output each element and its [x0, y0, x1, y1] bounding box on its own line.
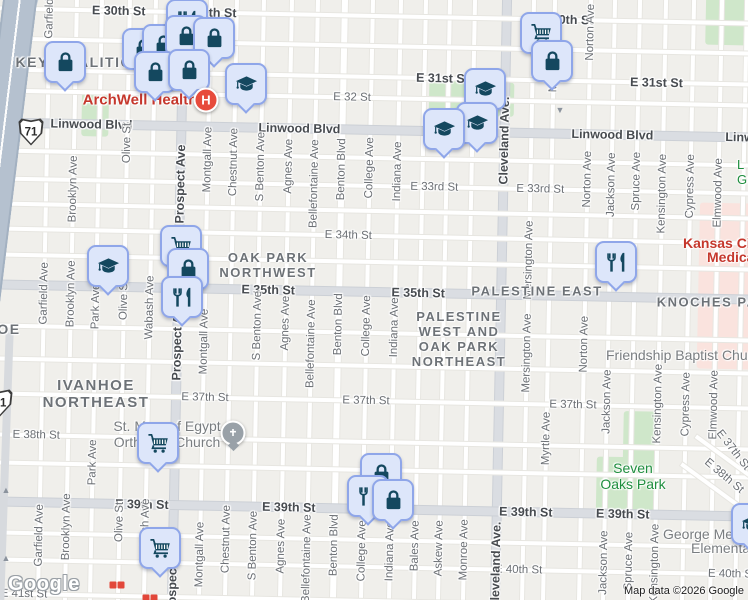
street-label: Indiana Ave — [383, 521, 396, 581]
street-label: Benton Blvd — [335, 138, 348, 200]
street-label: Chestnut Ave — [227, 128, 240, 196]
street-label: Park Ave — [86, 439, 99, 485]
street-label: Montgall Ave — [201, 127, 214, 193]
street-label: E 37th St — [342, 394, 390, 407]
map-pin-restaurant[interactable] — [595, 241, 637, 283]
street-label: Garfield Ave — [33, 504, 46, 567]
street-label: Monroe Ave — [457, 519, 470, 580]
map-pin-graduation-cap[interactable] — [87, 245, 129, 287]
map-pin-red-chip[interactable] — [143, 595, 150, 600]
street-label: E 40th St — [708, 568, 748, 581]
street-label: Montgall Ave — [197, 309, 210, 375]
street-label: Norton Ave — [578, 316, 591, 373]
map-pin-graduation-cap[interactable] — [423, 108, 465, 150]
graduation-cap-icon — [235, 73, 258, 96]
street-label: Bellefontaine Ave — [304, 299, 318, 388]
street-label: Agnes Ave — [274, 519, 287, 574]
map-data-attribution: Map data ©2026 Google — [624, 585, 744, 597]
street-label: Askew Ave — [432, 520, 445, 576]
street-label: Jackson Ave — [605, 152, 618, 217]
map-pin-hospital[interactable]: H — [194, 88, 219, 113]
street-label: Brooklyn Ave — [66, 155, 79, 222]
shopping-bag-icon — [54, 51, 77, 74]
street-label: E 37th St — [181, 391, 229, 404]
street-label: E 31st St — [416, 71, 469, 86]
street-label: E 34th St — [325, 229, 373, 242]
poi-label-kansas-city-medical-line2[interactable]: Medical — [707, 249, 748, 265]
street-label: S Benton Ave — [254, 132, 267, 202]
street-label: S Benton Ave — [246, 511, 259, 581]
map-pin-graduation-cap[interactable] — [225, 63, 267, 105]
street-label: Kensington Ave — [655, 154, 669, 234]
neighborhood-label: PALESTINEWEST ANDOAK PARKNORTHEAST — [412, 309, 506, 369]
neighborhood-label: IVANHOENORTHEAST — [43, 377, 150, 411]
map-pin-graduation-cap[interactable] — [731, 503, 748, 545]
poi-label-friendship-baptist-church[interactable]: Friendship Baptist Church — [606, 347, 748, 363]
map-pin-shopping-cart[interactable] — [137, 422, 179, 464]
street-label: E 33rd St — [410, 181, 458, 194]
street-label: Olive St — [113, 502, 126, 542]
graduation-cap-icon — [97, 255, 120, 278]
street-label: Cleveland Ave. — [488, 521, 504, 600]
graduation-cap-icon — [474, 78, 497, 101]
neighborhood-label: KNOCHES PARK — [657, 295, 748, 310]
street-label: Benton Blvd — [327, 514, 340, 576]
map-pin-shopping-cart[interactable] — [139, 527, 181, 569]
street-label: E 32 St — [333, 91, 371, 104]
street-label: E 30th St — [92, 3, 146, 18]
map-pin-shopping-bag[interactable] — [44, 41, 86, 83]
street-label: Benton Blvd — [332, 293, 345, 355]
map-pin-red-chip[interactable] — [110, 582, 117, 589]
street-label: Cypress Ave — [684, 154, 697, 219]
map-pin-church[interactable] — [221, 421, 246, 446]
street-label: Linwood Blvd — [258, 121, 340, 137]
street-label: S Benton Ave — [251, 291, 264, 361]
shopping-bag-icon — [144, 61, 167, 84]
street-label: Garfield Ave — [37, 262, 50, 325]
poi-label-archwell-health[interactable]: ArchWell Health — [83, 92, 198, 109]
street-label: College Ave — [355, 520, 368, 581]
neighborhood-label: OE — [0, 321, 21, 337]
neighborhood-label: OAK PARKNORTHWEST — [219, 250, 316, 280]
road-direction-arrow: ▲ — [2, 553, 11, 563]
street-label: Linwood Blvd — [571, 127, 653, 143]
shopping-bag-icon — [178, 59, 201, 82]
street-label: Indiana Ave — [388, 297, 401, 357]
map-pin-restaurant[interactable] — [161, 276, 203, 318]
poi-label-green-area-label[interactable]: LGr — [737, 157, 748, 187]
street-label: Brooklyn Ave — [64, 260, 77, 327]
road-direction-arrow: ▼ — [556, 105, 565, 115]
street-label: Spruce Ave — [630, 152, 643, 211]
street-label: College Ave — [363, 137, 376, 198]
street-label: E 38th St — [12, 429, 60, 442]
street-label: Jackson Ave — [600, 369, 613, 434]
street-label: Mersington Ave — [520, 313, 534, 392]
street-label: E 39th St — [596, 507, 650, 522]
street-label: E 37th St — [549, 399, 597, 412]
street-label: Bales Ave — [409, 520, 422, 571]
street-label: Norton Ave — [584, 4, 597, 61]
poi-label-seven-oaks-park[interactable]: SevenOaks Park — [600, 460, 665, 492]
street-label: Wabash Ave — [143, 275, 156, 339]
street-label: Brooklyn Ave — [60, 493, 73, 560]
street-label: E 33rd St — [516, 183, 564, 196]
street-label: Olive St — [121, 123, 134, 163]
street-label: Agnes Ave — [282, 139, 295, 194]
street-label: Kensington Ave — [651, 364, 665, 444]
street-label: Cypress Ave — [679, 372, 692, 437]
shopping-cart-icon — [149, 537, 172, 560]
graduation-cap-icon — [741, 513, 748, 536]
map-pin-shopping-bag[interactable] — [531, 40, 573, 82]
street-label: Linwood Blvd — [50, 116, 132, 132]
street-label: E 39th St — [499, 505, 553, 520]
street-label: College Ave — [360, 295, 373, 356]
street-label: Norton Ave — [581, 151, 594, 208]
google-logo[interactable]: Google — [8, 573, 80, 596]
street-label: Montgall Ave — [193, 522, 206, 588]
street-label: Indiana Ave — [391, 141, 404, 201]
street-label: Elmwood Ave — [707, 370, 720, 440]
graduation-cap-icon — [433, 118, 456, 141]
street-label: Linwood Blvd — [725, 130, 748, 146]
street-label: Jackson Ave — [597, 530, 610, 595]
street-label: Park Ave — [89, 283, 102, 329]
shopping-bag-icon — [541, 50, 564, 73]
restaurant-icon — [605, 251, 628, 274]
shopping-cart-icon — [147, 432, 170, 455]
street-label: Bellefontaine Ave — [307, 139, 321, 228]
restaurant-icon — [171, 286, 194, 309]
street-road — [0, 557, 748, 578]
graduation-cap-icon — [466, 112, 489, 135]
street-label: Myrtle Ave — [540, 412, 553, 466]
shopping-bag-icon — [382, 489, 405, 512]
road-direction-arrow: ▲ — [2, 485, 11, 495]
street-label: E 39th St — [262, 500, 316, 515]
street-label: Bellefontaine Ave — [300, 514, 314, 600]
street-label: Prospect Ave — [172, 144, 188, 223]
street-label: Spruce Ave — [622, 532, 635, 591]
street-label: Garfield Ave — [43, 0, 56, 39]
church-cross-icon — [227, 427, 240, 440]
map-canvas[interactable]: E 30th StE 30th StE 30th StE 31st StE 31… — [0, 0, 748, 600]
street-label: Chestnut Ave — [219, 505, 232, 573]
neighborhood-label: PALESTINE EAST — [471, 284, 602, 299]
map-pin-shopping-bag[interactable] — [372, 479, 414, 521]
street-label: Agnes Ave — [279, 296, 292, 351]
street-label: E 31st St — [630, 75, 683, 90]
map-pin-shopping-bag[interactable] — [168, 49, 210, 91]
shopping-bag-icon — [203, 27, 226, 50]
street-label: Elmwood Ave — [712, 158, 725, 228]
street-road — [0, 323, 748, 344]
